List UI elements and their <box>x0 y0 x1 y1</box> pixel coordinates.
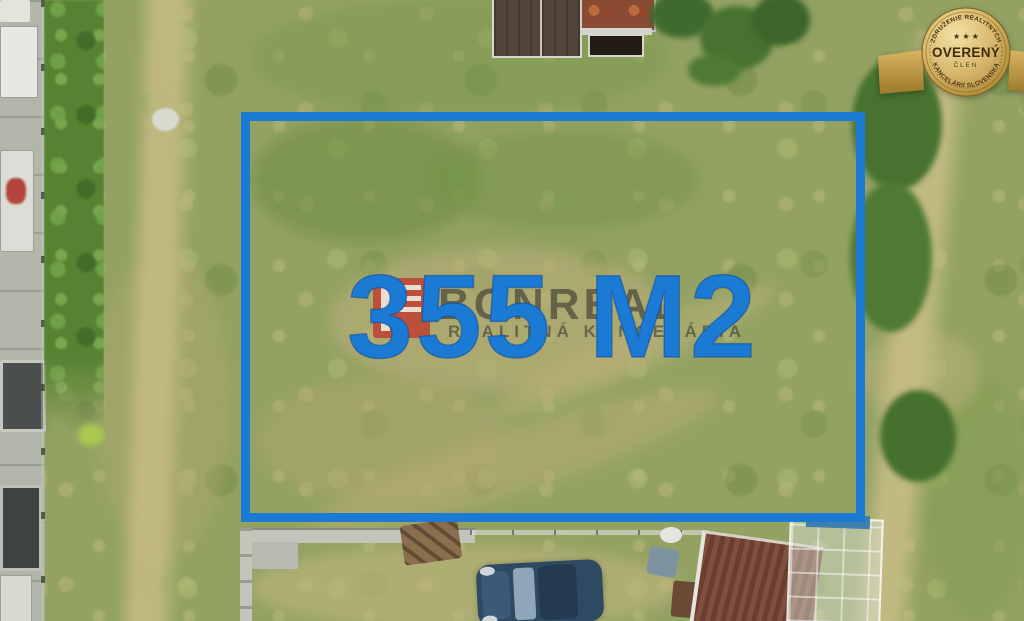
area-label: 355 M2 <box>241 112 865 522</box>
bush <box>78 424 104 446</box>
badge-title: OVERENÝ <box>932 45 1000 60</box>
parked-car <box>475 559 604 621</box>
badge-ribbon-left <box>878 50 924 94</box>
car-roof <box>537 564 578 619</box>
roof-opening <box>588 34 644 57</box>
gravestone <box>0 26 38 98</box>
bush-cluster <box>880 390 956 482</box>
gravestone <box>0 485 42 571</box>
aerial-photo-scene: BONREAL REALITNÁ KANCELÁRIA 355 M2 ZDRUŽ… <box>0 0 1024 621</box>
concrete-pad <box>252 542 298 569</box>
verified-badge: ZDRUŽENIE REALITNÝCH KANCELÁRIÍ SLOVENSK… <box>872 0 1024 122</box>
grave-flowers <box>6 178 26 204</box>
greenhouse <box>786 516 884 621</box>
gravestone <box>0 360 46 432</box>
stone <box>152 108 179 131</box>
wood-trestle <box>399 518 462 566</box>
dry-grass-patch <box>250 545 680 621</box>
gravestone <box>0 575 32 621</box>
car-windshield <box>512 567 536 620</box>
tree-canopy <box>688 54 740 86</box>
concrete-wall <box>240 528 252 621</box>
gravestone <box>0 0 30 22</box>
car-headlight <box>482 615 498 621</box>
barn-roof <box>492 0 582 58</box>
hedge-row <box>44 0 104 436</box>
satellite-dish <box>660 527 682 543</box>
grey-chair <box>646 546 680 579</box>
badge-member: ČLEN <box>954 62 979 69</box>
badge-stars: ★ ★ ★ <box>953 32 979 41</box>
badge-ribbon-right <box>1008 50 1024 94</box>
car-hood <box>481 571 511 619</box>
